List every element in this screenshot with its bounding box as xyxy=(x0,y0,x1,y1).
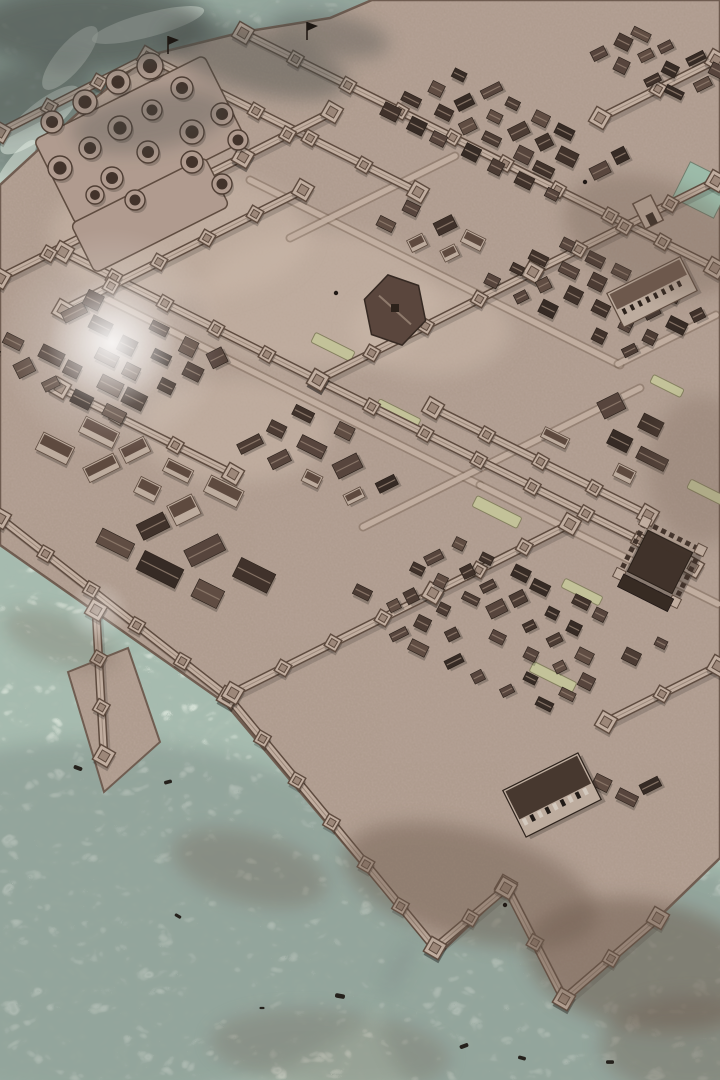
sepia-overlay xyxy=(0,0,720,1080)
map-viewport[interactable] xyxy=(0,0,720,1080)
city-map xyxy=(0,0,720,1080)
